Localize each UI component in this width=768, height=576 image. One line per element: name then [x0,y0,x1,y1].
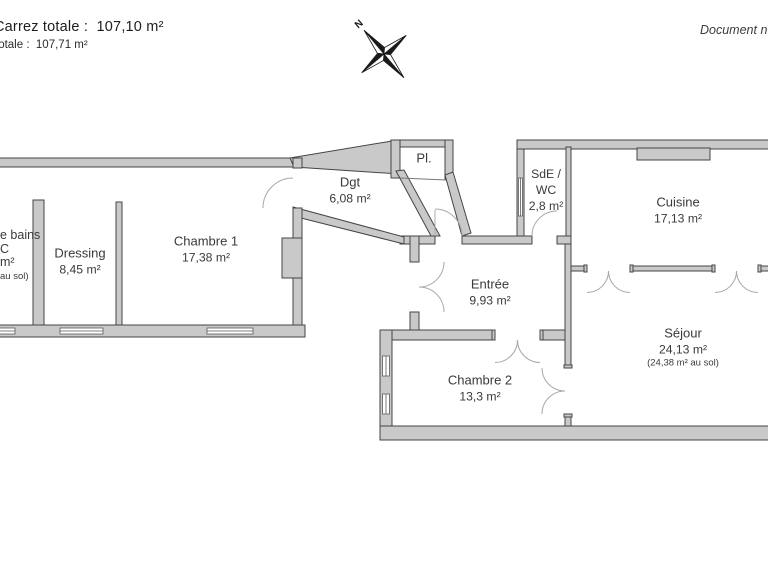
door-jamb [564,414,572,417]
room-label-sejour: Séjour 24,13 m² (24,38 m² au sol) [647,325,719,370]
room-label-cuisine: Cuisine 17,13 m² [654,194,702,227]
door-jamb [540,330,543,340]
room-label-dressing: Dressing 8,45 m² [54,245,105,278]
door-arc [495,340,518,363]
door-jamb [758,265,761,272]
room-label-dgt: Dgt 6,08 m² [329,174,370,207]
wall-segment [380,330,392,440]
door-jamb [564,365,572,368]
room-label-placard: Pl. [416,150,431,167]
door-jamb [492,330,495,340]
door-arc [609,271,631,293]
door-arc [419,287,444,312]
wall-segment [290,141,399,174]
wall-segment [630,266,715,271]
wall-segment [0,158,296,167]
door-jamb [630,265,633,272]
room-label-chambre2: Chambre 2 13,3 m² [448,372,512,405]
compass-icon: N [334,2,427,97]
header-carrez-total: Carrez totale : 107,10 m² [0,19,164,35]
door-arc [263,178,293,208]
wall-segment [566,147,571,238]
room-label-salle-de-bains-partial: e bains C m² au sol) [0,229,40,283]
wall-segment [380,330,495,340]
floorplan-drawing: N [0,0,768,576]
wall-segment [462,236,532,244]
door-arc [715,271,737,293]
wall-segment [282,238,302,278]
door-jamb [584,265,587,272]
door-arc [587,271,609,293]
door-arc [419,262,444,287]
wall-segment [637,148,710,160]
document-note: Document n [700,23,767,37]
wall-segment [410,236,419,262]
windows-layer [0,178,523,414]
wall-segment [293,207,404,244]
door-arc [518,340,541,363]
wall-segment [0,325,305,337]
header-surface-total: totale : 107,71 m² [0,39,88,51]
door-arc [532,211,557,236]
wall-segment [445,172,471,236]
door-jamb [712,265,715,272]
room-label-sde-wc: SdE / WC 2,8 m² [529,166,564,214]
floorplan-page: N Carrez totale : 107,10 m² totale : 107… [0,0,768,576]
door-arc [542,391,565,414]
room-label-entree: Entrée 9,93 m² [469,276,510,309]
compass-north-label: N [353,18,366,31]
wall-segment [293,158,302,168]
wall-segment [565,244,571,368]
door-arc [737,271,759,293]
room-label-chambre1: Chambre 1 17,38 m² [174,233,238,266]
wall-segment [116,202,122,325]
wall-segment [557,236,571,244]
wall-segment [380,426,768,440]
door-arc [542,368,565,391]
